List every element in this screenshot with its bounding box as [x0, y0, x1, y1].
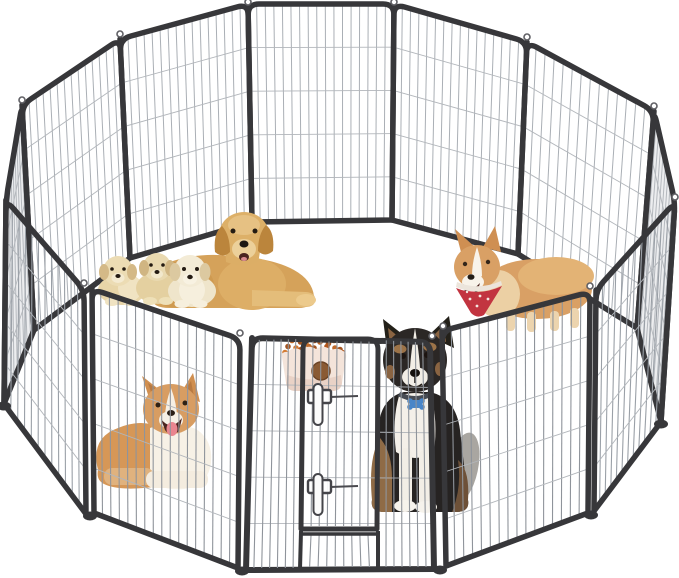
fence-panel-back-center [248, 4, 394, 222]
panel-eyelet [117, 31, 123, 37]
playpen-product-photo [0, 0, 679, 578]
panel-eyelet [524, 34, 530, 40]
panel-eyelet [245, 0, 251, 5]
panel-foot [83, 512, 97, 521]
fence-panel-back-right [392, 4, 527, 254]
panel-eyelet [19, 97, 25, 103]
panel-eyelet [391, 0, 397, 5]
panel-foot [584, 511, 598, 520]
panel-foot [433, 566, 447, 575]
panel-eyelet [587, 283, 593, 289]
panel-eyelet [237, 330, 243, 336]
panel-foot [654, 420, 668, 429]
panel-eyelet [81, 280, 87, 286]
door-slide-latch [308, 474, 358, 515]
panel-eyelet [672, 194, 678, 200]
panel-eyelet [651, 103, 657, 109]
panel-eyelet [429, 333, 435, 339]
panel-eyelet [440, 323, 446, 329]
playpen-scene [0, 0, 679, 578]
fence-panel-front-right [442, 294, 590, 566]
panel-foot [235, 567, 249, 576]
tongue [167, 422, 178, 436]
